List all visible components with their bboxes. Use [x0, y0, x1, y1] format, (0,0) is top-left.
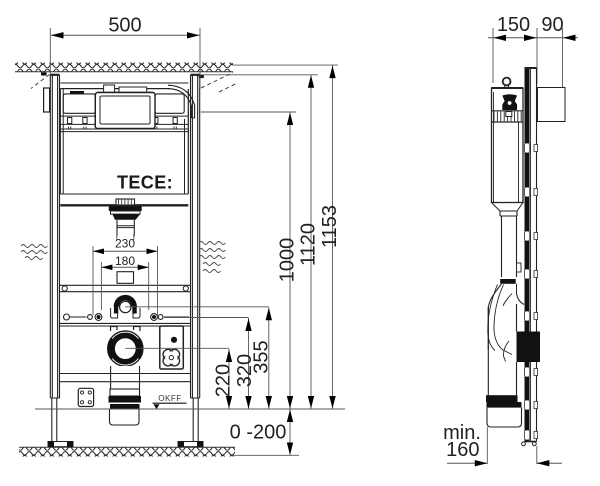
svg-text:150: 150: [497, 14, 530, 36]
svg-text:TECE:: TECE:: [117, 173, 173, 193]
svg-text:500: 500: [108, 15, 141, 37]
svg-text:1153: 1153: [319, 205, 341, 248]
svg-text:1000: 1000: [276, 238, 298, 283]
svg-text:220: 220: [212, 364, 234, 397]
svg-text:1120: 1120: [297, 223, 319, 266]
svg-text:355: 355: [250, 340, 272, 373]
svg-text:230: 230: [115, 236, 135, 250]
svg-text:90: 90: [541, 14, 563, 36]
svg-text:OKFF: OKFF: [158, 394, 181, 403]
svg-text:0 -200: 0 -200: [230, 422, 287, 444]
svg-text:180: 180: [115, 254, 135, 268]
svg-text:160: 160: [446, 439, 479, 461]
